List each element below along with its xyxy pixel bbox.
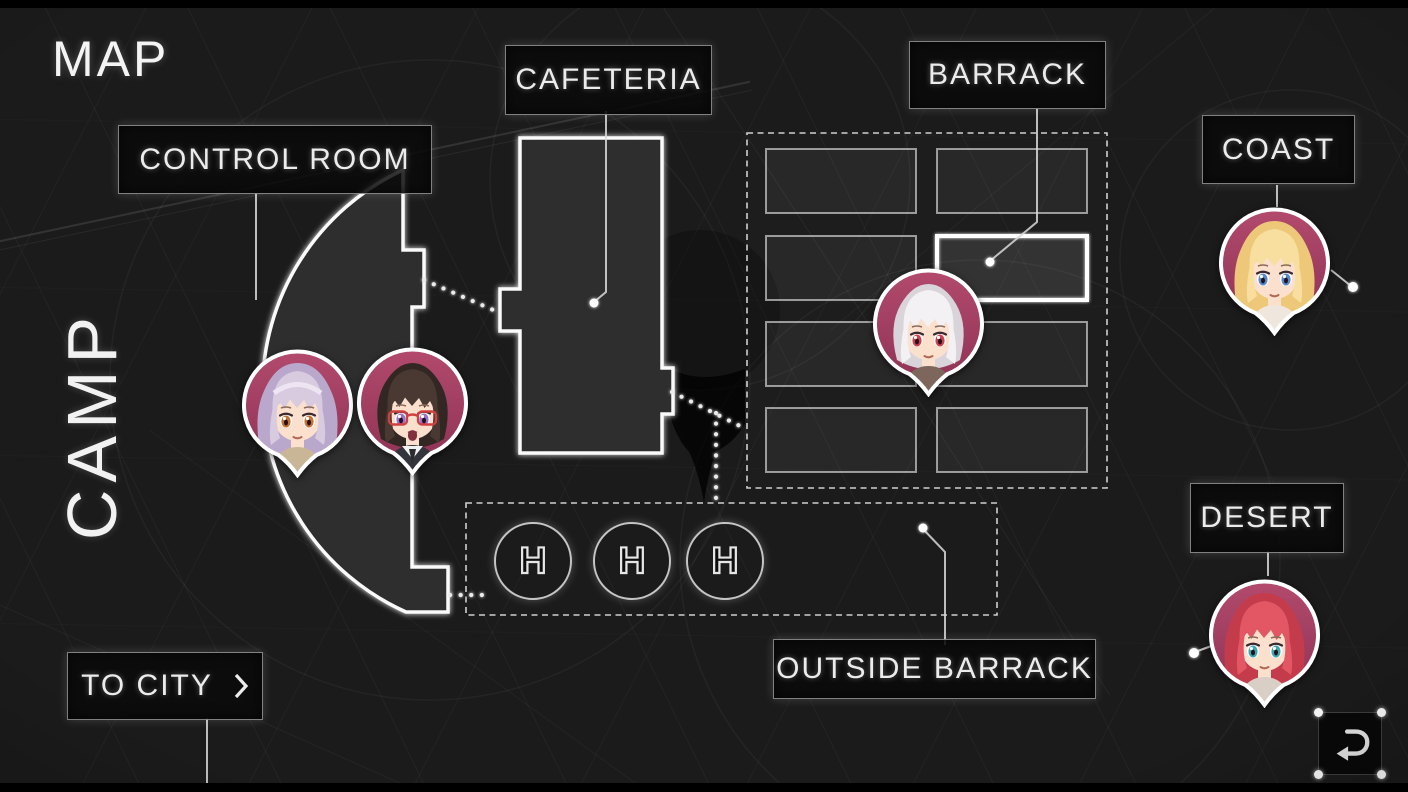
back-button[interactable] [1318, 712, 1382, 775]
character-pin-red-hair-girl[interactable] [1207, 577, 1322, 708]
marker-dot-cafeteria [590, 299, 599, 308]
helipad-letter: H [520, 540, 547, 582]
leader-outside-barrack [923, 529, 945, 645]
letterbox-bar-top [0, 0, 1408, 8]
helipad-marker: H [593, 522, 671, 600]
label-desert[interactable]: DESERT [1190, 483, 1344, 553]
marker-dot-barrack [986, 258, 995, 267]
helipad-marker: H [494, 522, 572, 600]
barrack-room [766, 408, 916, 472]
path-controlroom-to-cafeteria [424, 280, 498, 312]
leader-coast-location [1331, 270, 1351, 286]
chevron-right-icon [233, 673, 249, 699]
marker-dot-outside-barrack [919, 524, 928, 533]
marker-dot-coast [1348, 282, 1358, 292]
corner-dot [1377, 770, 1386, 779]
to-city-label: TO CITY [81, 669, 213, 703]
label-cafeteria[interactable]: CAFETERIA [505, 45, 712, 115]
label-desert-text: DESERT [1200, 501, 1333, 535]
helipad-letter: H [712, 540, 739, 582]
character-pin-silver-hair-girl[interactable] [240, 347, 355, 478]
barrack-room [937, 408, 1087, 472]
label-control-room[interactable]: CONTROL ROOM [118, 125, 432, 194]
barrack-room [937, 149, 1087, 213]
camp-map-screen: HHH [0, 0, 1408, 792]
label-barrack[interactable]: BARRACK [909, 41, 1106, 109]
label-coast-text: COAST [1222, 133, 1335, 167]
corner-dot [1377, 708, 1386, 717]
character-pin-blonde-girl[interactable] [1217, 205, 1332, 336]
helipad-letter: H [619, 540, 646, 582]
helipad-marker: H [686, 522, 764, 600]
return-arrow-icon [1327, 722, 1373, 766]
label-control-room-text: CONTROL ROOM [139, 143, 410, 177]
cafeteria-building [500, 138, 673, 453]
corner-dot [1314, 708, 1323, 717]
corner-dot [1314, 770, 1323, 779]
letterbox-bar-bottom [0, 783, 1408, 792]
character-pin-white-hair-girl[interactable] [871, 266, 986, 397]
label-outside-barrack-text: OUTSIDE BARRACK [776, 652, 1093, 686]
barrack-room [766, 149, 916, 213]
page-title: MAP [52, 30, 169, 88]
label-cafeteria-text: CAFETERIA [515, 63, 701, 97]
label-coast[interactable]: COAST [1202, 115, 1355, 184]
marker-dot-desert [1189, 648, 1199, 658]
character-pin-glasses-girl[interactable] [355, 345, 470, 476]
region-title: CAMP [52, 310, 132, 540]
label-outside-barrack[interactable]: OUTSIDE BARRACK [773, 639, 1096, 699]
label-barrack-text: BARRACK [928, 58, 1087, 92]
to-city-button[interactable]: TO CITY [67, 652, 263, 720]
